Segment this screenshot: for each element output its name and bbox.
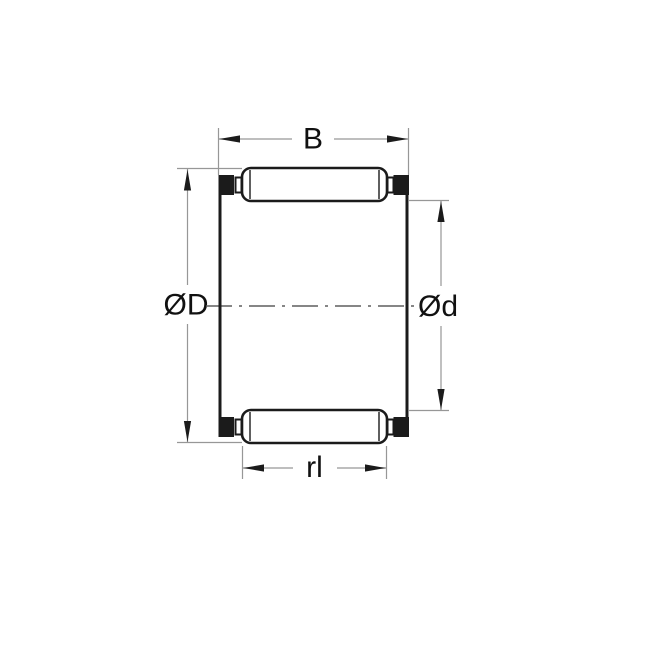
arrowhead-down-icon xyxy=(437,389,444,410)
lip-block-bottom-right xyxy=(394,417,410,437)
arrowhead-up-icon xyxy=(184,170,191,191)
arrowhead-up-icon xyxy=(437,201,444,222)
roller-top xyxy=(242,168,387,201)
label-inner-diameter: Ød xyxy=(418,290,458,323)
cage-stub-top-left xyxy=(236,178,242,193)
bearing-drawing: B ØD Ød xyxy=(0,0,670,670)
label-roller-length: rl xyxy=(306,451,323,484)
arrowhead-right-icon xyxy=(365,464,386,471)
cage-stub-bottom-right xyxy=(388,420,394,435)
lip-block-top-left xyxy=(219,175,235,195)
roller-bottom xyxy=(242,410,387,443)
cage-stub-top-right xyxy=(388,178,394,193)
dimension-roller-length: rl xyxy=(243,446,387,484)
arrowhead-right-icon xyxy=(387,135,408,142)
label-width-B: B xyxy=(303,123,323,156)
cage-stub-bottom-left xyxy=(236,420,242,435)
label-outer-diameter: ØD xyxy=(164,289,209,322)
arrowhead-left-icon xyxy=(219,135,240,142)
lip-block-top-right xyxy=(394,175,410,195)
diagram-canvas: B ØD Ød xyxy=(0,0,670,670)
arrowhead-left-icon xyxy=(243,464,264,471)
arrowhead-down-icon xyxy=(184,421,191,442)
lip-block-bottom-left xyxy=(219,417,235,437)
dimension-inner-diameter: Ød xyxy=(409,201,458,411)
